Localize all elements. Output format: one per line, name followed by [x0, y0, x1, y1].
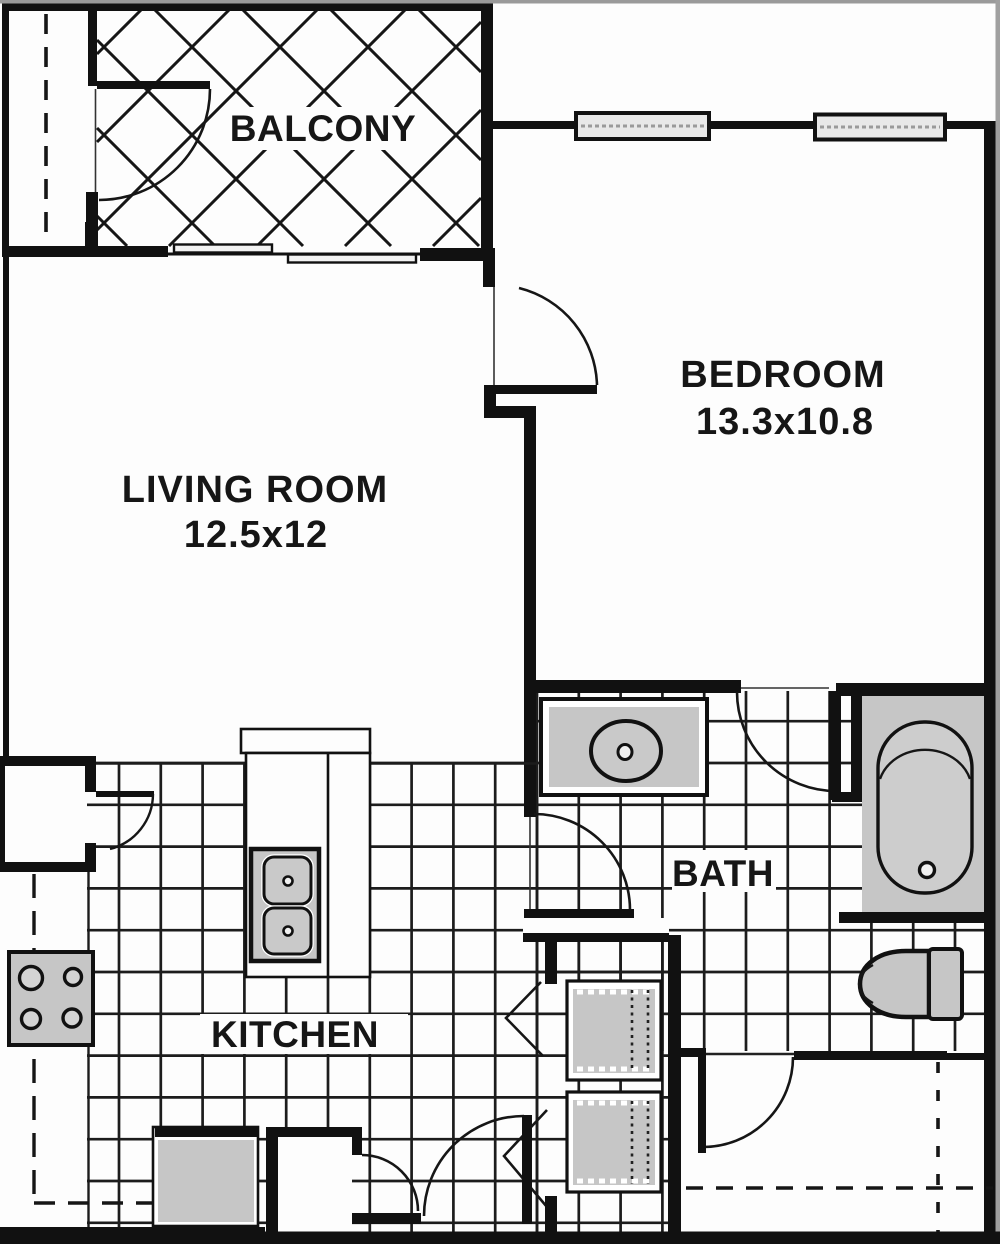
svg-text:LIVING ROOM: LIVING ROOM	[122, 469, 388, 511]
svg-text:BALCONY: BALCONY	[230, 108, 416, 149]
svg-text:13.3x10.8: 13.3x10.8	[696, 401, 874, 443]
svg-text:KITCHEN: KITCHEN	[211, 1014, 379, 1055]
svg-text:12.5x12: 12.5x12	[184, 514, 328, 556]
svg-text:BATH: BATH	[672, 853, 774, 894]
svg-text:BEDROOM: BEDROOM	[680, 354, 885, 396]
